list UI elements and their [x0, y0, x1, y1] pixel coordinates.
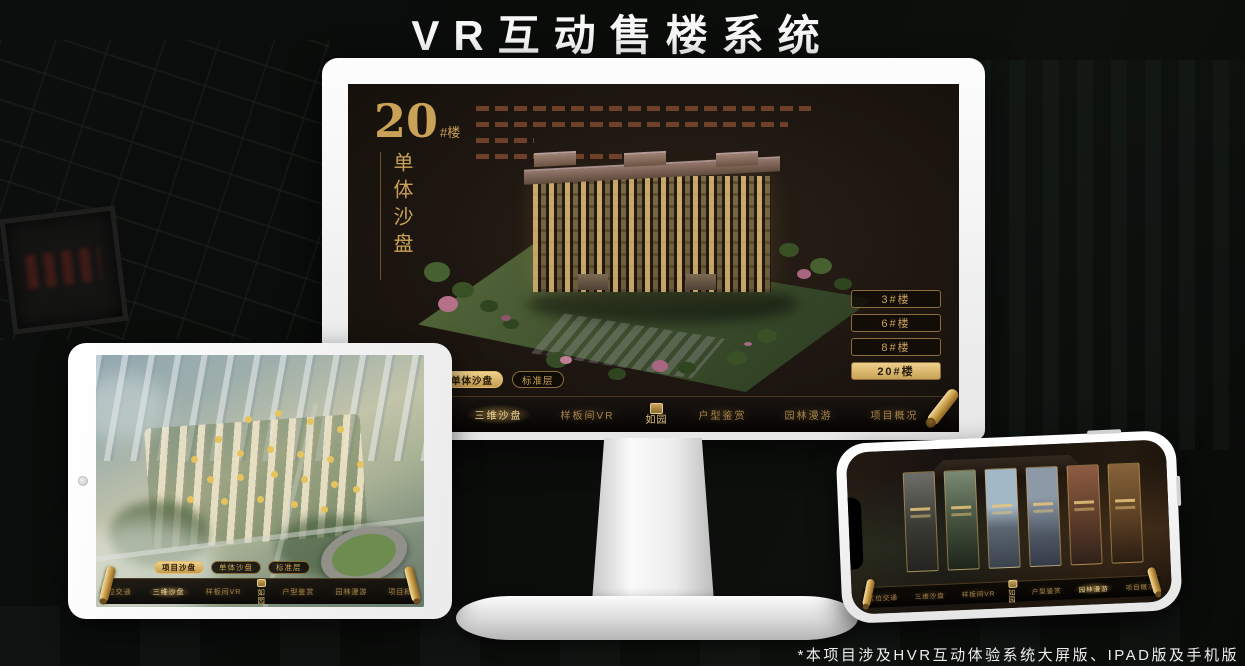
gallery-panel[interactable]	[1066, 464, 1102, 565]
roof-gable	[534, 151, 576, 167]
gallery-panel[interactable]	[985, 468, 1021, 569]
description-line	[476, 106, 811, 111]
monitor-stand-base	[456, 596, 858, 640]
nav-item-floorplans[interactable]: 户型鉴赏	[277, 586, 319, 598]
brand-seal-icon	[257, 579, 266, 587]
building-selector: 3#楼 6#楼 8#楼 20#楼	[851, 290, 941, 380]
tablet-tab-project-sandbox[interactable]: 项目沙盘	[154, 561, 204, 574]
description-line	[476, 122, 788, 127]
background-certificate-plaque	[0, 205, 129, 334]
gallery-panel[interactable]	[903, 471, 939, 572]
phone-screen[interactable]: 区位交通 三维沙盘 样板间VR 如园 户型鉴赏 园林漫游 项目概况	[846, 439, 1173, 614]
building-button-8[interactable]: 8#楼	[851, 338, 941, 356]
footnote-text: *本项目涉及HVR互动体验系统大屏版、IPAD版及手机版	[798, 644, 1239, 665]
tablet-camera-icon	[78, 476, 88, 486]
background-map-texture	[0, 40, 330, 340]
building-facade	[533, 176, 771, 292]
nav-item-floorplans[interactable]: 户型鉴赏	[1027, 584, 1065, 598]
building-button-3[interactable]: 3#楼	[851, 290, 941, 308]
brand-seal-icon	[650, 403, 663, 414]
background-city-texture	[975, 60, 1245, 450]
gallery-panel[interactable]	[944, 469, 980, 570]
brand-logo: 如园	[1008, 580, 1019, 604]
nav-item-3d-sandbox[interactable]: 三维沙盘	[468, 405, 530, 424]
gallery-panel[interactable]	[1026, 466, 1062, 567]
section-title-vertical: 单体沙盘	[380, 152, 416, 280]
lit-windows	[533, 176, 771, 292]
blossom-trees-cluster	[438, 296, 458, 312]
building-number: 20	[374, 94, 438, 148]
nav-item-floorplans[interactable]: 户型鉴赏	[691, 405, 753, 424]
building-button-6[interactable]: 6#楼	[851, 314, 941, 332]
nav-item-3d-sandbox[interactable]: 三维沙盘	[911, 589, 949, 603]
entrance-canopy	[578, 274, 608, 290]
nav-item-3d-sandbox[interactable]: 三维沙盘	[148, 586, 190, 598]
building-3d-model[interactable]	[418, 146, 878, 401]
roof-gable	[624, 151, 666, 167]
building-marker-dots	[96, 355, 101, 360]
nav-item-project-overview[interactable]: 项目概况	[863, 405, 925, 424]
scene-gallery	[903, 462, 1144, 572]
page-title: VR互动售楼系统	[0, 2, 1245, 63]
building-button-20[interactable]: 20#楼	[851, 362, 941, 380]
nav-item-showroom-vr[interactable]: 样板间VR	[201, 586, 247, 598]
tablet-screen[interactable]: 项目沙盘 单体沙盘 标准层 区位交通 三维沙盘 样板间VR 如园 户型鉴赏 园林…	[96, 355, 424, 607]
scroll-roller-icon[interactable]	[925, 387, 959, 427]
roof-gable	[716, 151, 758, 167]
building-number-suffix: #楼	[440, 125, 460, 140]
tablet-device: 项目沙盘 单体沙盘 标准层 区位交通 三维沙盘 样板间VR 如园 户型鉴赏 园林…	[68, 343, 452, 619]
tablet-sub-tabs: 项目沙盘 单体沙盘 标准层	[154, 561, 310, 574]
promo-canvas: VR互动售楼系统 20#楼 单体沙盘	[0, 0, 1245, 666]
phone-volume-button	[1087, 429, 1121, 434]
description-line	[476, 138, 534, 143]
nav-item-showroom-vr[interactable]: 样板间VR	[958, 586, 1000, 600]
nav-item-garden-tour[interactable]: 园林漫游	[1074, 582, 1112, 596]
tablet-navbar: 区位交通 三维沙盘 样板间VR 如园 户型鉴赏 园林漫游 项目概况	[104, 578, 416, 604]
tablet-tab-standard-floor[interactable]: 标准层	[268, 561, 310, 574]
nav-item-garden-tour[interactable]: 园林漫游	[777, 405, 839, 424]
tablet-tab-single-sandbox[interactable]: 单体沙盘	[211, 561, 261, 574]
nav-item-showroom-vr[interactable]: 样板间VR	[554, 405, 622, 424]
brand-seal-icon	[1008, 580, 1017, 588]
green-trees-cluster	[424, 262, 450, 282]
nav-item-garden-tour[interactable]: 园林漫游	[330, 586, 372, 598]
brand-logo: 如园	[257, 579, 266, 604]
gallery-panel[interactable]	[1107, 462, 1143, 563]
entrance-canopy	[686, 274, 716, 290]
tab-standard-floor[interactable]: 标准层	[512, 371, 564, 388]
monitor-stand-neck	[592, 438, 714, 602]
brand-logo: 如园	[645, 403, 667, 426]
phone-power-button	[1176, 476, 1181, 506]
phone-device: 区位交通 三维沙盘 样板间VR 如园 户型鉴赏 园林漫游 项目概况	[835, 430, 1182, 624]
